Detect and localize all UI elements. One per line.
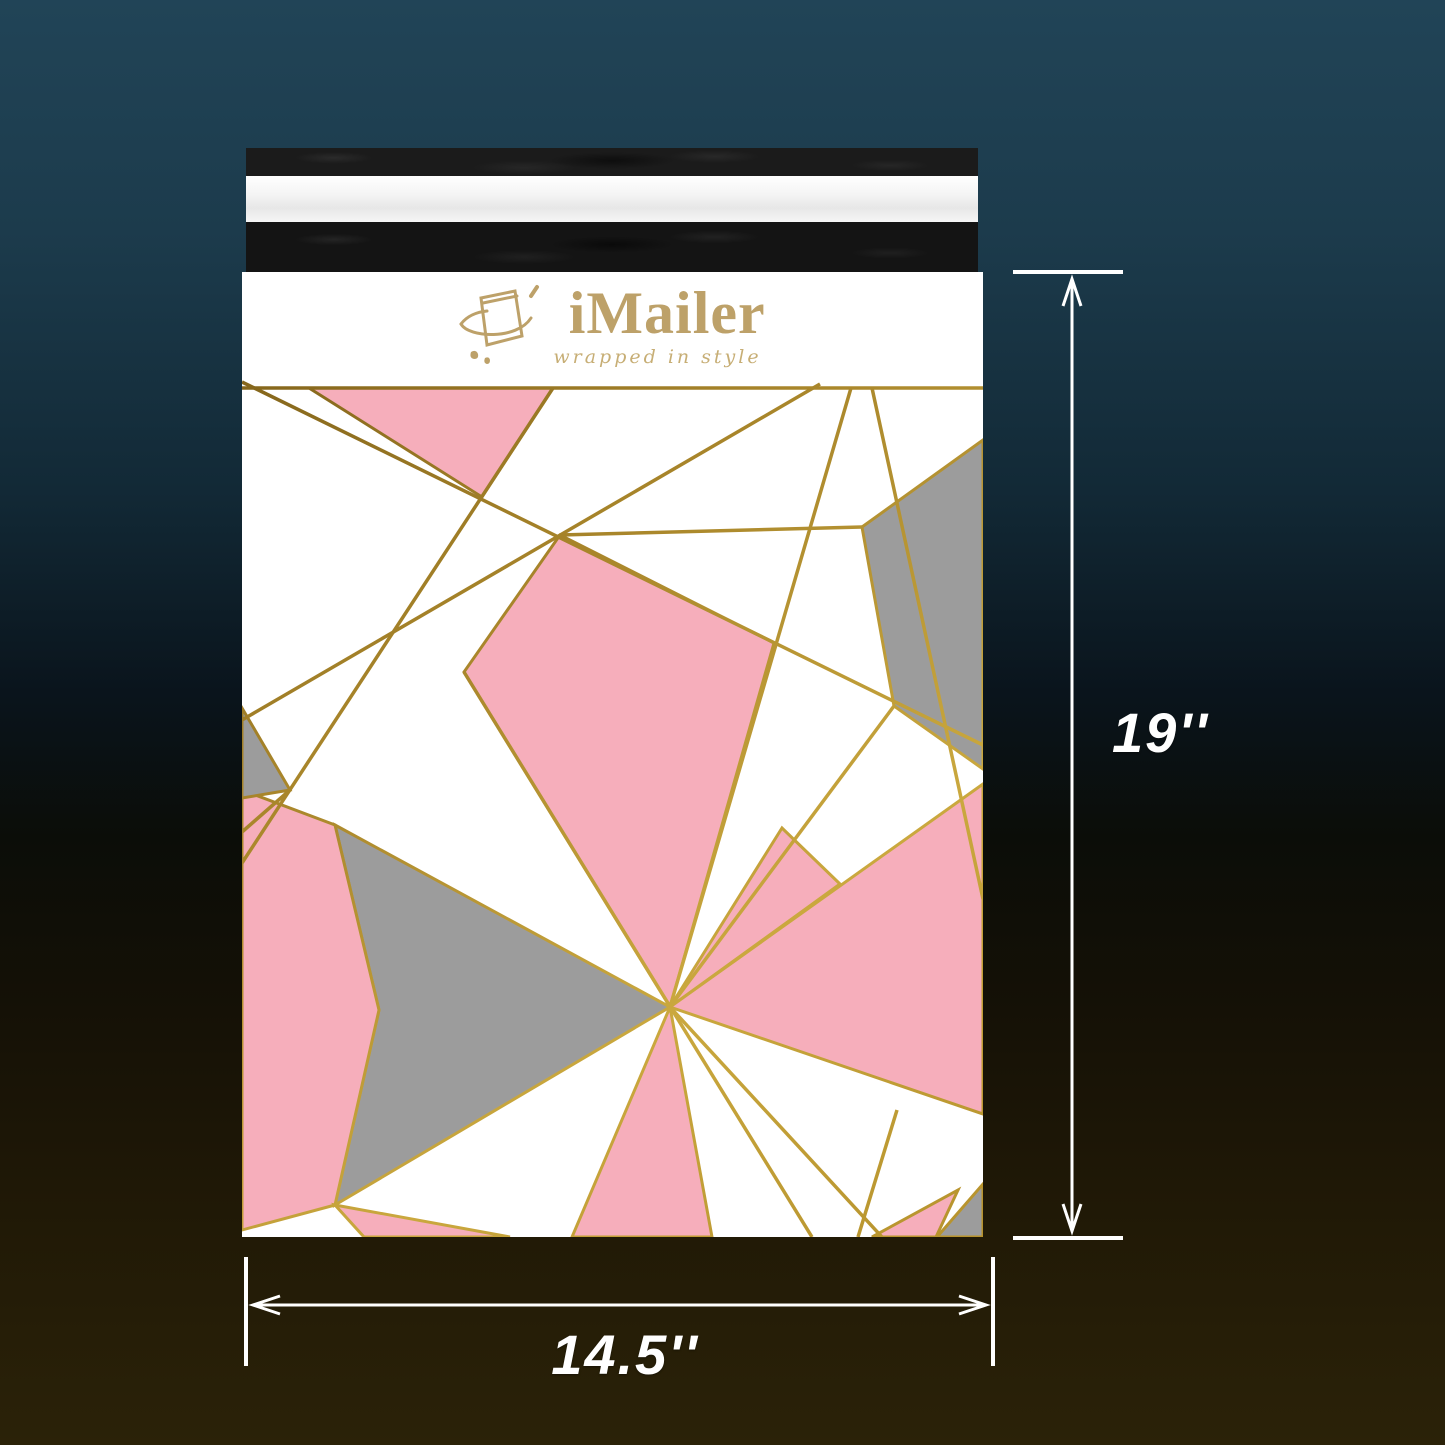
arrow-down-icon <box>1063 1204 1081 1231</box>
brand-tagline: wrapped in style <box>553 346 761 368</box>
brand-name: iMailer <box>569 282 766 345</box>
pattern-gray-quad-top-right <box>862 440 983 769</box>
pattern-gray-triangle-left-edge <box>242 708 290 798</box>
height-dimension-line <box>1013 272 1123 1238</box>
arrow-right-icon <box>959 1296 986 1314</box>
mailer-flap <box>246 148 978 272</box>
brand-wordmark: iMailer wrapped in style <box>553 282 765 368</box>
droplet-accents <box>471 351 491 364</box>
flap-black-strip-top <box>246 148 978 176</box>
product-scene: iMailer wrapped in style <box>0 0 1445 1445</box>
pattern-pink-triangle-bottom-left <box>335 1205 510 1237</box>
height-dimension-label: 19'' <box>1112 700 1209 765</box>
brand-logo: iMailer wrapped in style <box>242 282 983 380</box>
arrow-left-icon <box>253 1296 280 1314</box>
flap-release-liner <box>246 176 978 222</box>
flap-adhesive-strip <box>246 222 978 272</box>
envelope-swoosh-icon <box>459 284 541 380</box>
width-dimension-label: 14.5'' <box>520 1322 730 1387</box>
arrow-up-icon <box>1063 279 1081 306</box>
geometric-pattern <box>242 272 983 1237</box>
mailer-body: iMailer wrapped in style <box>242 272 983 1237</box>
